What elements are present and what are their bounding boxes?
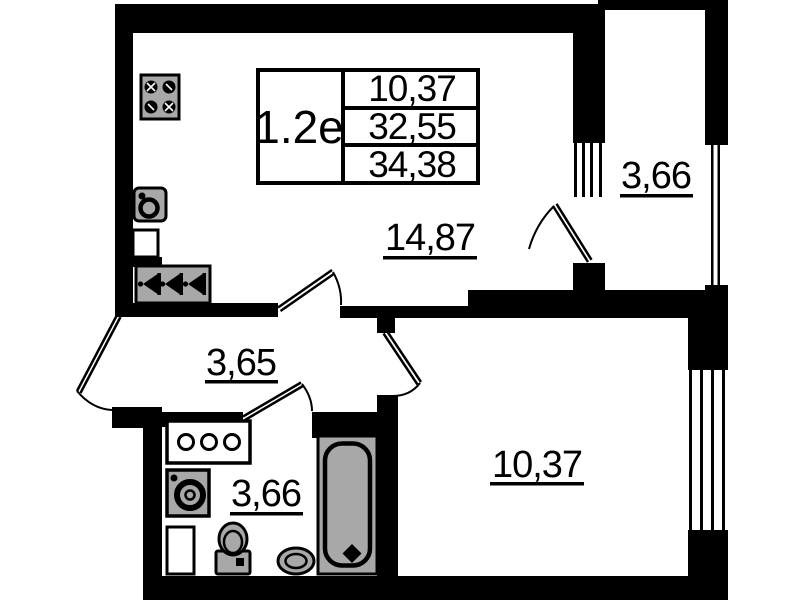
basin-body (278, 548, 314, 574)
entrance-door (77, 315, 121, 410)
door-leaf (384, 331, 422, 385)
sink-tap (139, 193, 146, 200)
wall-bedroom-left-stub (377, 316, 395, 333)
living-room-door (278, 270, 341, 311)
balcony-glazing (711, 145, 720, 285)
washer-drum (177, 482, 203, 508)
room-label-balcony: 3,66 (621, 155, 691, 197)
wall-right-lower (688, 530, 728, 600)
room-label-underline (230, 512, 303, 516)
window-line (711, 370, 714, 530)
washer-knob (171, 475, 178, 482)
wall-right-upper (688, 290, 728, 370)
window-line (599, 143, 602, 197)
wall-hall-top-right (340, 306, 472, 318)
balcony-door (529, 204, 592, 262)
door-swing-arc (333, 272, 341, 305)
unit-area-value-3: 34,38 (368, 144, 456, 185)
door-swing-arc (302, 384, 312, 411)
bedroom-window (689, 370, 725, 530)
door-swing-arc (77, 391, 112, 410)
counter-icon (167, 421, 250, 463)
toilet-icon (216, 523, 250, 574)
door-swing-arc (529, 206, 554, 249)
door-leaf (243, 383, 303, 421)
room-label-underline (205, 380, 278, 384)
wall-top (115, 4, 605, 33)
stove-icon (141, 75, 179, 119)
room-label-underline (383, 256, 477, 260)
glazing-line (711, 145, 714, 285)
wall-balcony-right (705, 0, 728, 145)
door-swing-arc (393, 383, 420, 396)
sink-bowl (141, 200, 158, 217)
bathtub-tub (325, 444, 370, 566)
door-leaf (553, 204, 592, 262)
kitchen-sink-icon (134, 188, 166, 221)
wall-left (115, 4, 133, 317)
room-labels: 14,87 3,66 3,65 3,66 10,37 (205, 155, 693, 516)
bedroom-door (384, 331, 422, 396)
window-line (590, 143, 593, 197)
meter-box-icon (136, 266, 210, 303)
window-line (582, 143, 585, 197)
room-label-underline (490, 482, 584, 486)
room-label-bedroom: 10,37 (492, 444, 582, 486)
unit-info-card: 1.2е 10,37 32,55 34,38 (254, 68, 478, 185)
washing-machine-icon (167, 470, 209, 516)
room-label-kitchen-living: 14,87 (385, 217, 475, 259)
room-label-bathroom: 3,66 (231, 473, 301, 515)
door-leaf (77, 315, 121, 393)
floor-plan-drawing: 14,87 3,66 3,65 3,66 10,37 1.2е 10,37 32… (0, 0, 799, 600)
floor-plan: 14,87 3,66 3,65 3,66 10,37 1.2е 10,37 32… (0, 0, 799, 600)
window-line (574, 143, 577, 197)
wall-niche (133, 230, 158, 257)
wall-bottom (143, 576, 728, 600)
toilet-button (236, 558, 244, 566)
bathtub-icon (318, 436, 377, 574)
basin-icon (278, 548, 314, 574)
unit-area-value-1: 10,37 (368, 68, 456, 109)
wall-bath-left (143, 412, 162, 600)
window-line (689, 370, 692, 530)
wall-hall-top-left (115, 303, 278, 317)
balcony-window (574, 143, 602, 197)
unit-type-label: 1.2е (254, 101, 344, 153)
stove-body (141, 75, 179, 119)
wall-bath-top-right (312, 412, 389, 438)
window-line (722, 370, 725, 530)
room-label-hallway: 3,65 (206, 342, 276, 384)
wall-balcony-left-upper (573, 4, 605, 143)
room-label-underline (620, 194, 693, 198)
unit-area-value-2: 32,55 (368, 106, 456, 147)
glazing-line (718, 145, 721, 285)
door-leaf (278, 270, 335, 311)
bathroom-door (243, 383, 312, 421)
cabinet-icon (167, 527, 194, 574)
window-line (700, 370, 703, 530)
